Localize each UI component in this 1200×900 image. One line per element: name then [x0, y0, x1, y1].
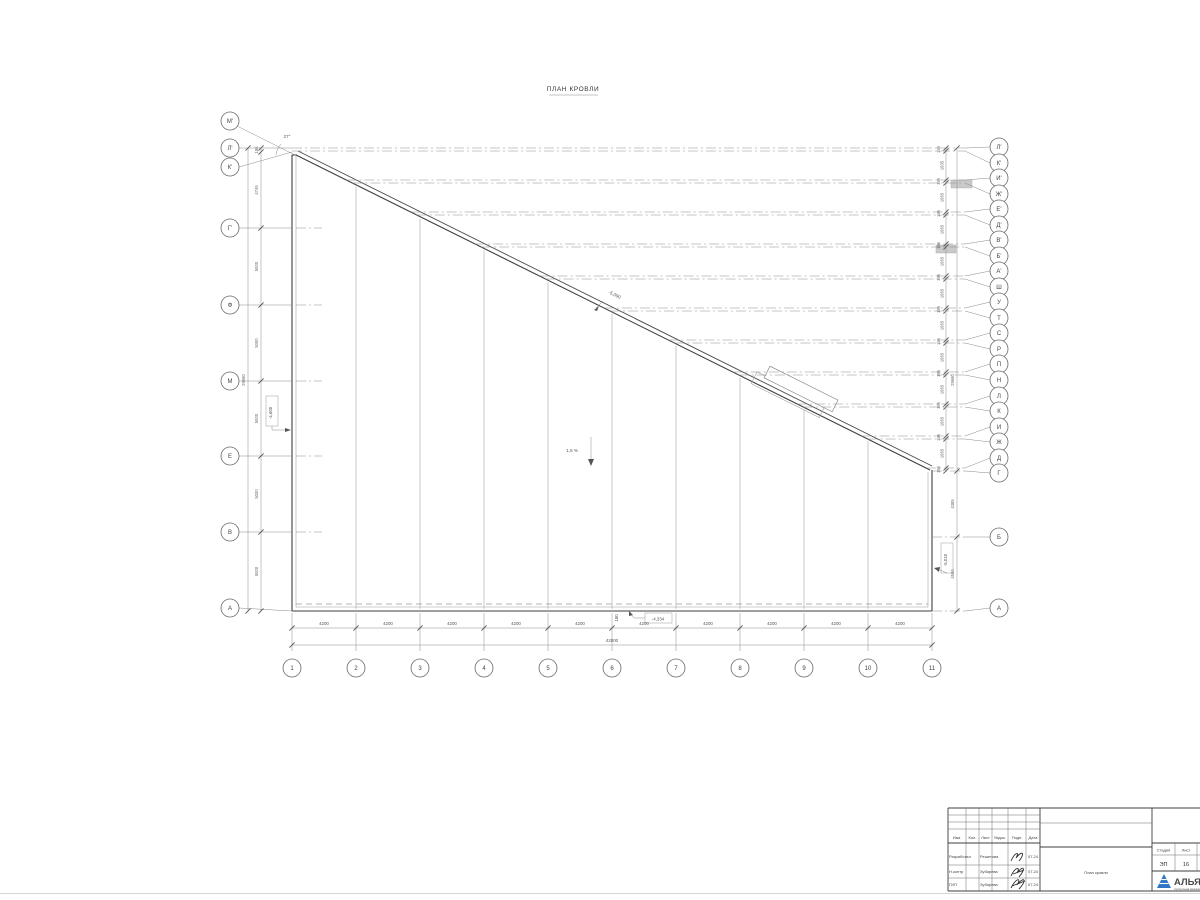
axis-leader-Л': [965, 147, 990, 148]
axis-leader-К: [965, 407, 990, 411]
right-dim-label: 195: [936, 177, 941, 185]
bottom-dim-label: 4200: [895, 621, 905, 626]
bottom-dim-label: 4200: [383, 621, 393, 626]
left-dim-label: 5000: [254, 489, 259, 499]
axis-bubble-right-У-label: У: [997, 300, 1001, 306]
roof-plan-sheet: ПЛАН КРОВЛИ 27° -5,090 1,5 % -4,60: [0, 0, 1200, 900]
bottom-dim-label: 4200: [703, 621, 713, 626]
slope-elevation-label: -5,090: [608, 290, 622, 300]
axis-bubble-right-К-label: К: [997, 409, 1001, 415]
right-dim-label: 1935: [940, 160, 945, 170]
axis-bubble-right-Д-label: Д: [997, 456, 1001, 462]
parapet-dim-label: 180: [614, 614, 619, 622]
bottom-total-label: 42000: [606, 638, 619, 643]
axis-leader-Р: [965, 343, 990, 349]
axis-leader-К': [965, 151, 990, 163]
left-dim-label: 5000: [254, 261, 259, 271]
right-dim-label: 195: [936, 369, 941, 377]
column-grid-lines: [356, 187, 868, 609]
right-dim-4385: 4385: [950, 499, 955, 509]
bottom-dim-label: 4200: [319, 621, 329, 626]
dimension-lines: 4200420042004200420042004200420042004200…: [241, 145, 960, 651]
axis-leader-Т: [965, 311, 990, 318]
right-dim-label: 1965: [940, 416, 945, 426]
bottom-elevation-leader: [630, 613, 645, 618]
axis-leader-Б': [965, 247, 990, 256]
right-dim-label: 195: [936, 401, 941, 409]
logo-text: АЛЬЯН: [1174, 877, 1200, 888]
right-dim-label: 195: [936, 145, 941, 153]
tb-col-ndok: №док.: [994, 835, 1006, 840]
right-axis-lines: [292, 147, 990, 611]
axis-bubble-К'-label: К': [228, 165, 233, 171]
right-dim-label: 1965: [940, 448, 945, 458]
axis-bubble-right-Ш-label: Ш: [996, 285, 1002, 291]
bottom-dim-label: 4200: [447, 621, 457, 626]
title-block: Изм. Кол. Лист №док. Подп. Дата Разработ…: [0, 808, 1200, 894]
axis-leader-И': [965, 178, 990, 180]
slope-direction-arrow: [588, 459, 594, 466]
axis-leader-М': [235, 125, 297, 156]
bottom-dim-label: 4200: [767, 621, 777, 626]
axis-leader-Ж: [965, 439, 990, 442]
right-dim-label: 1965: [940, 192, 945, 202]
bottom-dim-label: 4200: [575, 621, 585, 626]
tb-sheet-label: Лист: [1182, 848, 1191, 853]
tb-stage-label: Стадия: [1157, 848, 1171, 853]
tb-sheet-value: 16: [1183, 862, 1189, 868]
axis-leader-Е': [965, 209, 990, 212]
slope-percent-label: 1,5 %: [566, 448, 578, 453]
right-dim-label: 195: [936, 433, 941, 441]
axis-bubble-right-С-label: С: [997, 331, 1002, 337]
right-dim-label: 195: [936, 465, 941, 473]
drain-marker-1: [951, 180, 972, 188]
axis-bubble-right-Л-label: Л: [997, 394, 1001, 400]
axis-bubble-10-label: 10: [865, 666, 872, 672]
axis-leader-Д': [965, 215, 990, 225]
signature-2: [1011, 868, 1024, 877]
axis-bubble-right-Б-label: Б: [997, 535, 1001, 541]
axis-leader-В': [965, 240, 990, 244]
right-dim-label: 1965: [940, 352, 945, 362]
logo-triangle-icon: [1157, 874, 1171, 888]
tb-date-3: 07.24: [1028, 882, 1039, 887]
left-dim-label: 5000: [254, 413, 259, 423]
axis-bubble-right-И-label: И: [997, 425, 1001, 431]
slope-percent-annotation: 1,5 %: [566, 437, 594, 466]
right-dim-label: 195: [936, 209, 941, 217]
right-total-label: 29680: [950, 374, 955, 386]
tb-role-1: Разработал: [949, 854, 971, 859]
axis-bubble-11-label: 11: [929, 666, 936, 672]
bottom-elevation-label: -4,334: [652, 617, 665, 622]
axis-bubble-right-А'-label: А': [996, 269, 1001, 275]
drawing-title: ПЛАН КРОВЛИ: [547, 86, 600, 93]
axis-bubble-right-Ж'-label: Ж': [996, 192, 1003, 198]
axis-leader-П: [965, 364, 990, 372]
right-dim-label: 195: [936, 305, 941, 313]
company-logo: АЛЬЯН строительная компания: [1157, 874, 1200, 891]
axis-bubble-М-label: М: [228, 379, 233, 385]
bottom-dim-label: 4200: [639, 621, 649, 626]
tb-name-2: Зубарева: [980, 869, 998, 874]
left-dim-label: 195: [254, 146, 259, 154]
tb-name-1: Решетова: [980, 854, 999, 859]
bottom-dim-label: 4200: [831, 621, 841, 626]
roof-edge-diagonal-2: [298, 151, 932, 466]
axis-leader-А: [965, 608, 990, 611]
right-dim-label: 1965: [940, 256, 945, 266]
axis-bubble-Ф-label: Ф: [228, 303, 233, 309]
right-dim-4500: 4500: [950, 569, 955, 579]
signature-3: [1011, 880, 1025, 889]
axis-bubble-Е-label: Е: [228, 454, 232, 460]
axis-leader-Г: [965, 471, 990, 473]
right-elevation-label: -5,010: [943, 553, 948, 566]
axis-bubble-right-В'-label: В': [996, 238, 1001, 244]
tb-stage-value: ЭП: [1159, 862, 1167, 868]
right-dim-label: 1965: [940, 288, 945, 298]
left-elevation-label: -4,600: [268, 406, 273, 419]
axis-leader-Н: [965, 375, 990, 380]
tb-col-izm: Изм.: [953, 835, 962, 840]
tb-col-list: Лист: [981, 835, 990, 840]
tb-col-podp: Подп.: [1012, 835, 1023, 840]
axis-bubble-right-П-label: П: [997, 362, 1001, 368]
left-elevation-leader: [272, 426, 287, 430]
tb-role-3: ГИП: [949, 882, 957, 887]
axis-leader-Ж': [965, 183, 990, 194]
axis-bubble-В-label: В: [228, 530, 232, 536]
axis-bubble-right-Ж-label: Ж: [996, 440, 1002, 446]
tb-col-kol: Кол.: [969, 835, 977, 840]
bottom-dim-label: 4200: [511, 621, 521, 626]
right-dim-label: 1965: [940, 320, 945, 330]
angle-label: 27°: [284, 134, 291, 139]
tb-date-2: 07.24: [1028, 869, 1039, 874]
roof-edge-diagonal: [296, 155, 930, 470]
tb-date-1: 07.24: [1028, 854, 1039, 859]
axis-bubble-right-К'-label: К': [997, 161, 1002, 167]
tb-doc-title: План кровли: [1084, 870, 1108, 875]
axis-leader-Л: [965, 396, 990, 404]
axis-leader-К': [239, 152, 292, 167]
axis-bubble-right-И'-label: И': [996, 176, 1001, 182]
right-dim-label: 195: [936, 273, 941, 281]
signature-1: [1011, 853, 1023, 861]
axis-bubble-right-Л'-label: Л': [996, 145, 1001, 151]
axis-leader-И: [965, 427, 990, 436]
right-dim-label: 195: [936, 241, 941, 249]
slope-elevation-arrow: [594, 306, 599, 311]
left-dim-label: 5000: [254, 338, 259, 348]
axis-bubble-right-Б'-label: Б': [996, 254, 1001, 260]
axis-leader-А: [239, 608, 292, 611]
axis-bubble-right-Д'-label: Д': [996, 223, 1001, 229]
axis-bubble-right-А-label: А: [997, 606, 1001, 612]
axis-bubble-right-Е'-label: Е': [996, 207, 1001, 213]
left-total-label: 29680: [241, 374, 246, 386]
right-dim-label: 1965: [940, 224, 945, 234]
axis-leader-Ш: [965, 279, 990, 287]
right-dim-label: 1965: [940, 384, 945, 394]
axis-bubbles: 1234567891011М'Л'К'Г'ФМЕВАЛ'К'И'Ж'Е'Д'В'…: [221, 112, 1008, 677]
axis-bubble-right-Н-label: Н: [997, 378, 1001, 384]
axis-bubble-right-Т-label: Т: [997, 316, 1001, 322]
tb-col-data: Дата: [1029, 835, 1039, 840]
left-dim-label: 5000: [254, 566, 259, 576]
left-elevation-arrow: [285, 428, 291, 432]
axis-bubble-Г'-label: Г': [228, 226, 232, 232]
logo-subtext: строительная компания: [1174, 888, 1200, 891]
left-elevation-annotation: -4,600: [266, 396, 291, 432]
tb-role-2: Н.контр: [949, 869, 964, 874]
axis-bubble-right-Р-label: Р: [997, 347, 1001, 353]
right-elevation-arrow: [934, 567, 940, 572]
left-dim-label: 4745: [254, 185, 259, 195]
right-dim-label: 195: [936, 337, 941, 345]
axis-leader-У: [965, 302, 990, 308]
axis-bubble-А-label: А: [228, 606, 232, 612]
axis-leader-С: [965, 333, 990, 340]
axis-bubble-М'-label: М': [227, 119, 233, 125]
roof-hatch-upper: [764, 366, 838, 412]
axis-leader-А': [965, 271, 990, 276]
right-elevation-annotation: -5,010: [934, 543, 953, 573]
axis-bubble-Л'-label: Л': [227, 146, 232, 152]
bottom-elevation-arrow: [629, 611, 633, 616]
tb-name-3: Зубарева: [980, 882, 998, 887]
axis-leader-Д: [965, 458, 990, 468]
